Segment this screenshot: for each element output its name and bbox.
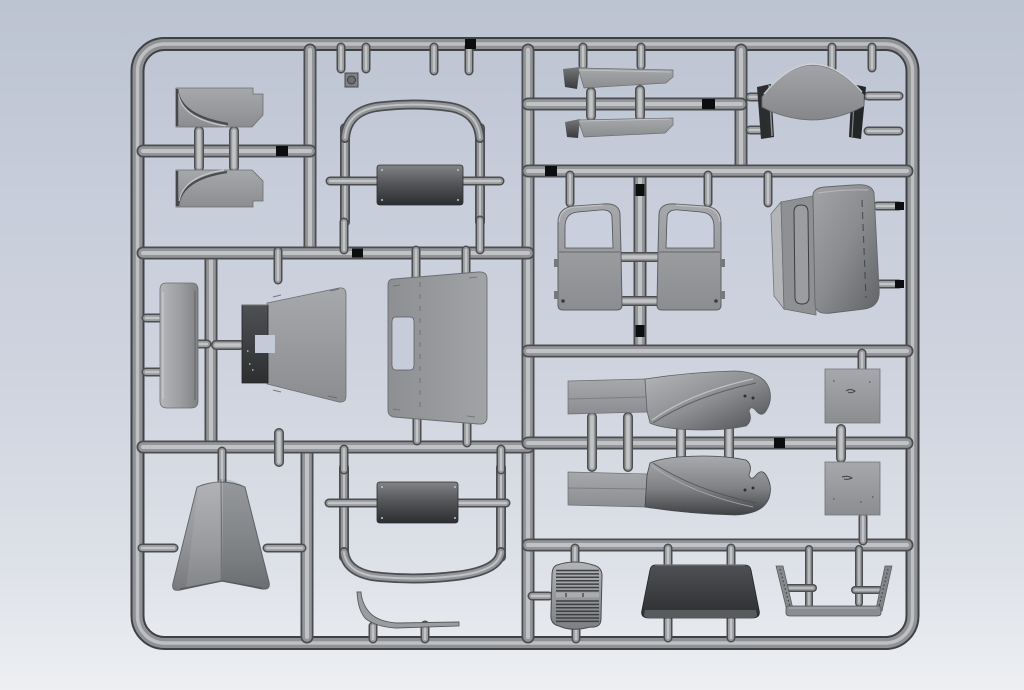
roof-glazing-panel-bottom [377, 482, 458, 523]
radiator-grille-part [551, 562, 602, 629]
cab-door-right-detail [714, 299, 718, 303]
filler-cap-disc-detail [348, 76, 356, 84]
flat-plate-lower [825, 462, 880, 515]
cab-roof-part [771, 185, 879, 315]
cab-corner-panel-lower [176, 170, 263, 207]
dashboard-firewall-part-shape [255, 335, 275, 353]
cab-floor-panel [267, 288, 346, 402]
front-fender-lower-shape [568, 472, 648, 507]
cab-door-right [657, 204, 725, 310]
cab-door-left-shape [565, 210, 613, 248]
windshield-glass-panel [642, 565, 760, 618]
flat-plate-upper [825, 369, 880, 423]
front-fender-upper-shape [568, 379, 648, 414]
seat-slab-part-shape [160, 283, 198, 408]
cab-door-left-detail [561, 299, 565, 303]
sun-visor-strips-shape [565, 119, 580, 138]
flat-plate-lower-shape [825, 462, 880, 515]
roof-glazing-panel-top-shape [377, 165, 463, 205]
front-fender-upper-detail [744, 395, 747, 398]
roof-glazing-panel-bottom-shape [377, 482, 458, 523]
cab-door-left [554, 204, 622, 310]
cab-corner-panel-upper [176, 88, 263, 127]
flat-plate-upper-shape [825, 369, 880, 423]
front-fender-lower-detail [744, 489, 747, 492]
roof-glazing-panel-top [377, 165, 463, 205]
sprue-render-screenshot: 3D CAD render of a gray injection-molded… [0, 0, 1024, 690]
cab-roof-part-shape [794, 205, 809, 304]
cab-back-panel [388, 272, 487, 424]
cab-roof-part-shape [813, 185, 879, 314]
cab-back-panel-shape [392, 317, 414, 370]
front-fender-lower-detail [752, 487, 755, 490]
front-fender-upper-detail [752, 397, 755, 400]
filler-cap-disc [345, 73, 358, 87]
seat-slab-part [160, 283, 198, 408]
cab-floor-panel-shape [267, 288, 346, 402]
radiator-grille-part-shape [556, 593, 599, 598]
cab-corner-panel-lower-shape [176, 170, 263, 207]
cab-door-right-shape [666, 210, 714, 248]
windshield-glass-panel-shape [644, 610, 757, 618]
sprue-scene-canvas [0, 0, 1024, 690]
